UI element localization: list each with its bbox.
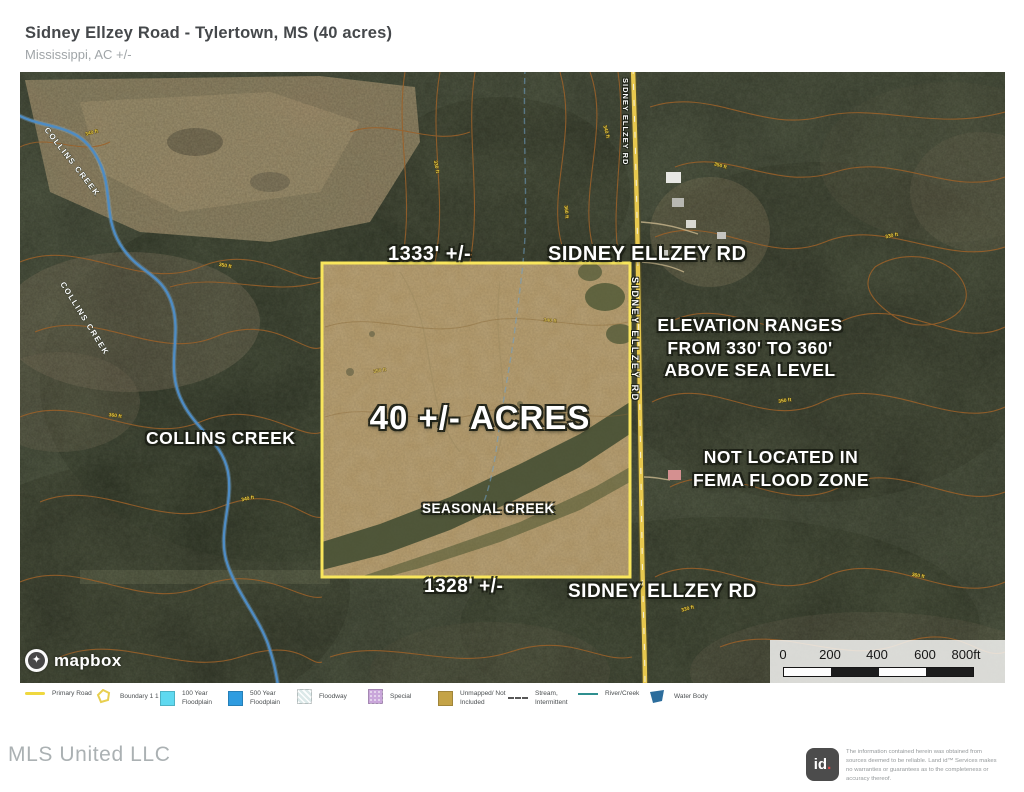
legend-item-floodway: Floodway — [297, 689, 365, 704]
collins-creek-label: COLLINS CREEK — [146, 428, 295, 449]
page-title: Sidney Ellzey Road - Tylertown, MS (40 a… — [25, 24, 392, 43]
legend-item-boundary: Boundary 1 1 1 — [93, 689, 166, 704]
acreage-label: 40 +/- ACRES — [350, 399, 610, 437]
road-label-top: SIDNEY ELLZEY RD — [548, 243, 746, 266]
scale-tick: 0 — [779, 647, 786, 662]
scale-bar-segments — [783, 667, 974, 677]
road-label-vertical-top: SIDNEY ELLZEY RD — [621, 78, 630, 165]
footer-brand: MLS United LLC — [8, 743, 170, 767]
unmapped-swatch — [438, 691, 453, 706]
river-swatch — [578, 693, 598, 695]
legend-item-unmapped: Unmapped/ Not Included — [438, 689, 506, 707]
primary-road-swatch — [25, 692, 45, 695]
map-legend: Primary Road Boundary 1 1 1 100 Year Flo… — [0, 683, 1024, 737]
report-header: Sidney Ellzey Road - Tylertown, MS (40 a… — [25, 24, 392, 62]
page-subtitle: Mississippi, AC +/- — [25, 47, 392, 62]
svg-text:340 ft: 340 ft — [543, 317, 557, 324]
legend-item-river-creek: River/Creek — [578, 689, 651, 698]
road-label-bottom: SIDNEY ELLZEY RD — [568, 581, 757, 603]
boundary-swatch — [96, 689, 111, 704]
legend-item-primary-road: Primary Road — [25, 689, 98, 698]
mapbox-wordmark: mapbox — [54, 651, 122, 671]
legend-item-100yr-floodplain: 100 Year Floodplain — [160, 689, 228, 707]
land-id-logo: id. — [806, 748, 839, 781]
stream-swatch — [508, 697, 528, 699]
water-body-swatch — [649, 689, 665, 704]
floodway-swatch — [297, 689, 312, 704]
seasonal-creek-label: SEASONAL CREEK — [422, 501, 555, 516]
floodplain500-swatch — [228, 691, 243, 706]
top-boundary-length-label: 1333' +/- — [388, 243, 471, 266]
scale-tick: 800ft — [952, 647, 981, 662]
scale-tick: 200 — [819, 647, 841, 662]
scale-bar: 0 200 400 600 800ft — [770, 640, 1005, 683]
scale-tick: 600 — [914, 647, 936, 662]
fema-note: NOT LOCATED IN FEMA FLOOD ZONE — [658, 446, 904, 492]
bottom-boundary-length-label: 1328' +/- — [424, 576, 503, 598]
legend-item-special: Special — [368, 689, 436, 704]
floodplain100-swatch — [160, 691, 175, 706]
legend-item-water-body: Water Body — [647, 689, 720, 704]
aerial-map: 340 ft 350 ft 330 ft 360 ft 340 ft 350 f… — [20, 72, 1005, 683]
road-label-vertical-mid: SIDNEY ELLZEY RD — [630, 277, 640, 403]
legend-item-500yr-floodplain: 500 Year Floodplain — [228, 689, 296, 707]
elevation-note: ELEVATION RANGES FROM 330' TO 360' ABOVE… — [618, 314, 882, 382]
special-swatch — [368, 689, 383, 704]
svg-text:360 ft: 360 ft — [562, 205, 569, 219]
disclaimer-block: id. The information contained herein was… — [806, 748, 1000, 783]
legend-item-stream-intermittent: Stream, Intermittent — [508, 689, 581, 707]
mapbox-attribution: ✦ mapbox — [25, 649, 122, 672]
page: { "header": { "title": "Sidney Ellzey Ro… — [0, 0, 1024, 792]
scale-tick: 400 — [866, 647, 888, 662]
mapbox-logo-icon: ✦ — [25, 649, 48, 672]
disclaimer-text: The information contained herein was obt… — [846, 748, 1000, 783]
